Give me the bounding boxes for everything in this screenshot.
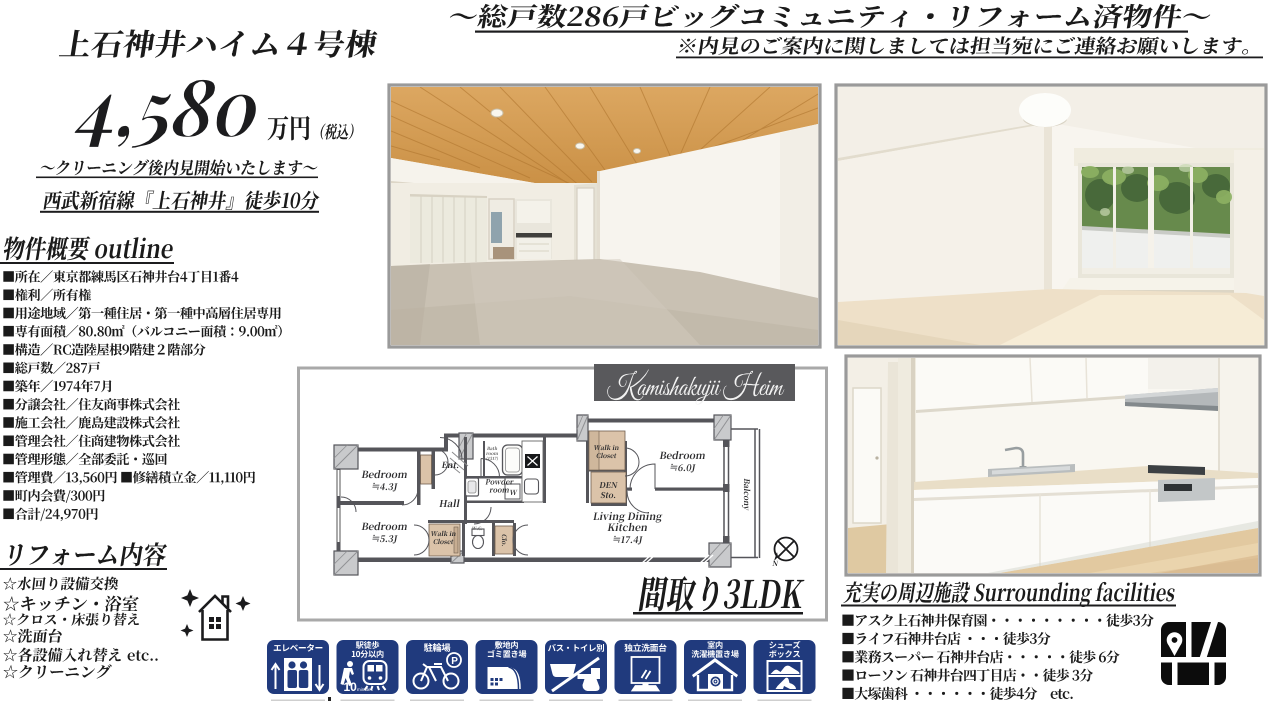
svg-text:P: P xyxy=(451,656,458,667)
svg-text:minutes: minutes xyxy=(357,687,374,692)
svg-text:10: 10 xyxy=(344,680,358,694)
